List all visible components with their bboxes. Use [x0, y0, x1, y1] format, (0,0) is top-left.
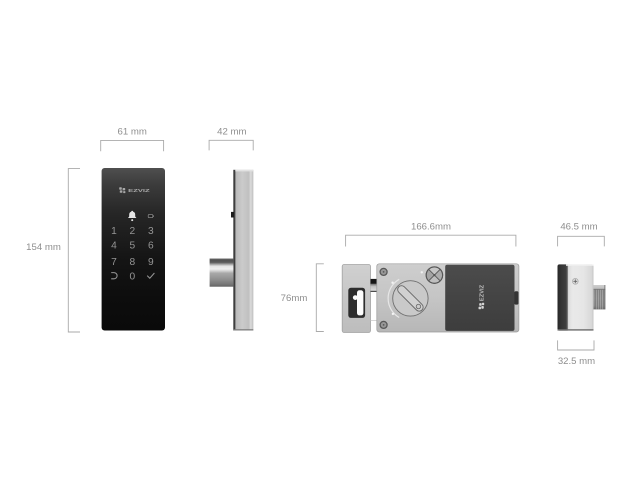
- svg-text:1: 1: [111, 226, 117, 237]
- svg-text:2: 2: [129, 226, 135, 237]
- svg-text:4: 4: [111, 241, 117, 252]
- svg-text:76mm: 76mm: [281, 293, 308, 304]
- svg-text:166.6mm: 166.6mm: [411, 221, 451, 232]
- svg-text:7: 7: [111, 257, 117, 268]
- svg-text:5: 5: [129, 241, 135, 252]
- svg-text:0: 0: [129, 271, 135, 282]
- svg-text:61 mm: 61 mm: [118, 127, 147, 138]
- svg-text:6: 6: [148, 241, 154, 252]
- svg-text:EZVIZ: EZVIZ: [479, 284, 485, 301]
- svg-text:EZVIZ: EZVIZ: [128, 188, 150, 193]
- svg-text:9: 9: [148, 257, 154, 268]
- svg-text:32.5 mm: 32.5 mm: [558, 356, 595, 367]
- svg-text:46.5 mm: 46.5 mm: [560, 221, 597, 232]
- svg-text:8: 8: [129, 257, 135, 268]
- svg-text:3: 3: [148, 226, 154, 237]
- svg-text:154 mm: 154 mm: [26, 242, 61, 253]
- svg-text:42 mm: 42 mm: [217, 127, 246, 138]
